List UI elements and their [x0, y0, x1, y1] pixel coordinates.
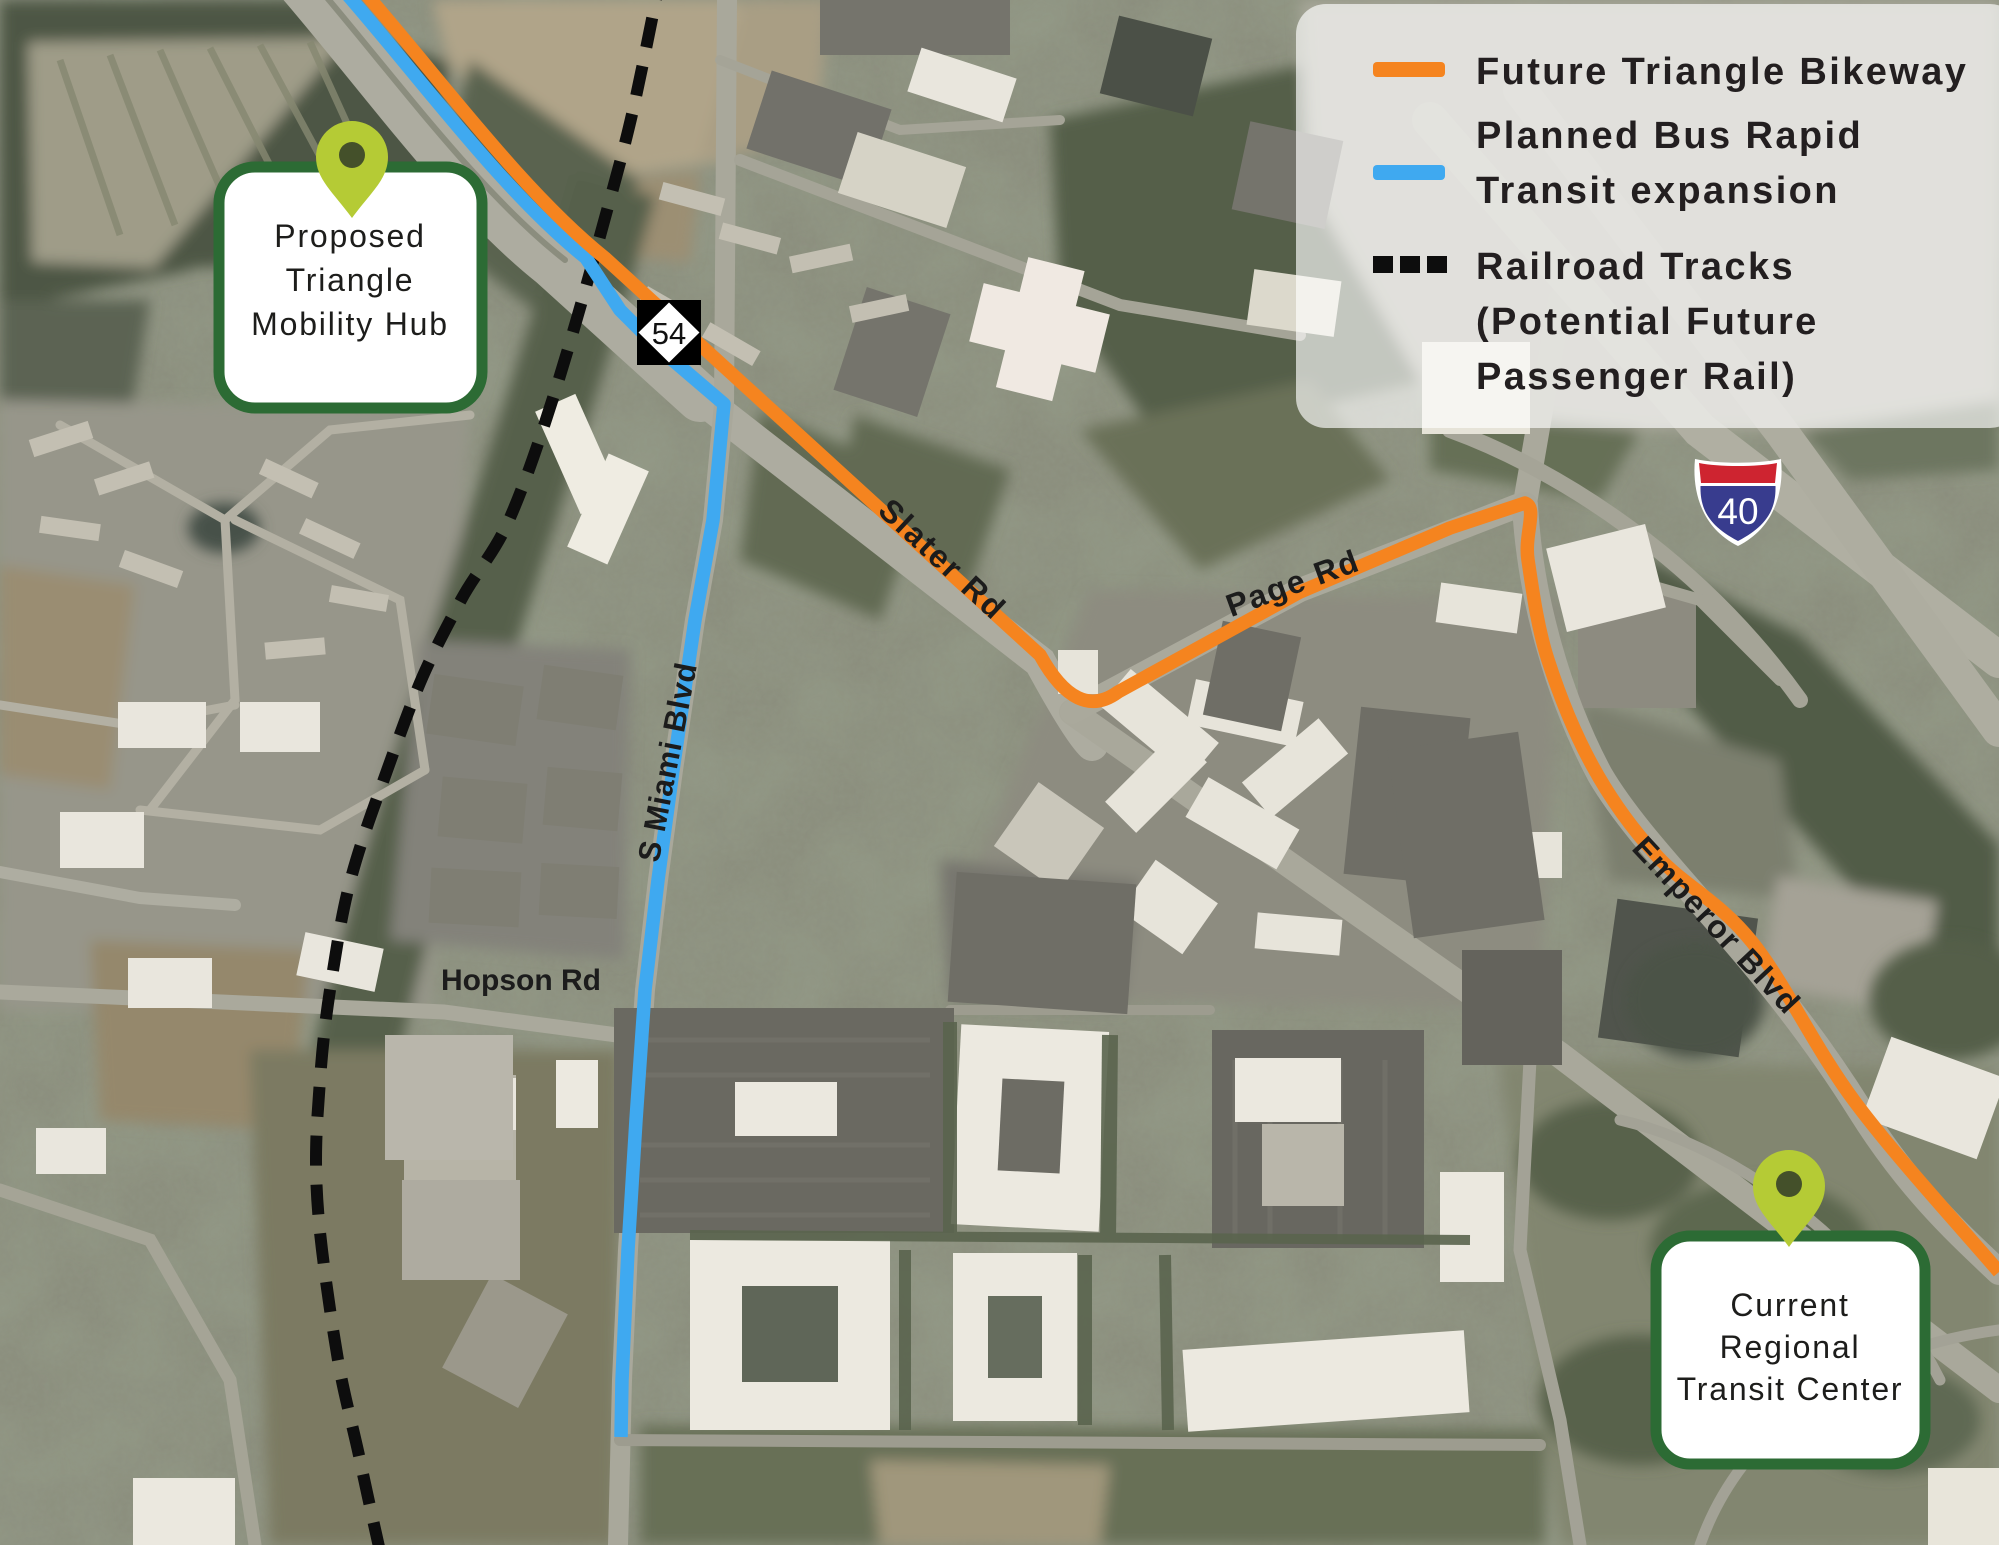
svg-text:Transit Center: Transit Center [1677, 1371, 1904, 1407]
svg-text:Proposed: Proposed [274, 218, 425, 254]
svg-text:Mobility Hub: Mobility Hub [251, 306, 449, 342]
svg-text:Railroad Tracks: Railroad Tracks [1476, 246, 1795, 288]
svg-text:Regional: Regional [1720, 1329, 1861, 1365]
svg-text:Triangle: Triangle [286, 262, 415, 298]
svg-text:40: 40 [1717, 491, 1758, 532]
svg-text:Hopson Rd: Hopson Rd [441, 964, 601, 997]
svg-text:54: 54 [652, 316, 686, 351]
svg-text:(Potential Future: (Potential Future [1476, 301, 1819, 343]
svg-text:Transit expansion: Transit expansion [1476, 170, 1840, 212]
svg-text:Planned Bus Rapid: Planned Bus Rapid [1476, 115, 1863, 157]
svg-text:Passenger Rail): Passenger Rail) [1476, 356, 1797, 398]
svg-text:Future Triangle Bikeway: Future Triangle Bikeway [1476, 51, 1968, 93]
svg-text:Current: Current [1730, 1287, 1849, 1323]
